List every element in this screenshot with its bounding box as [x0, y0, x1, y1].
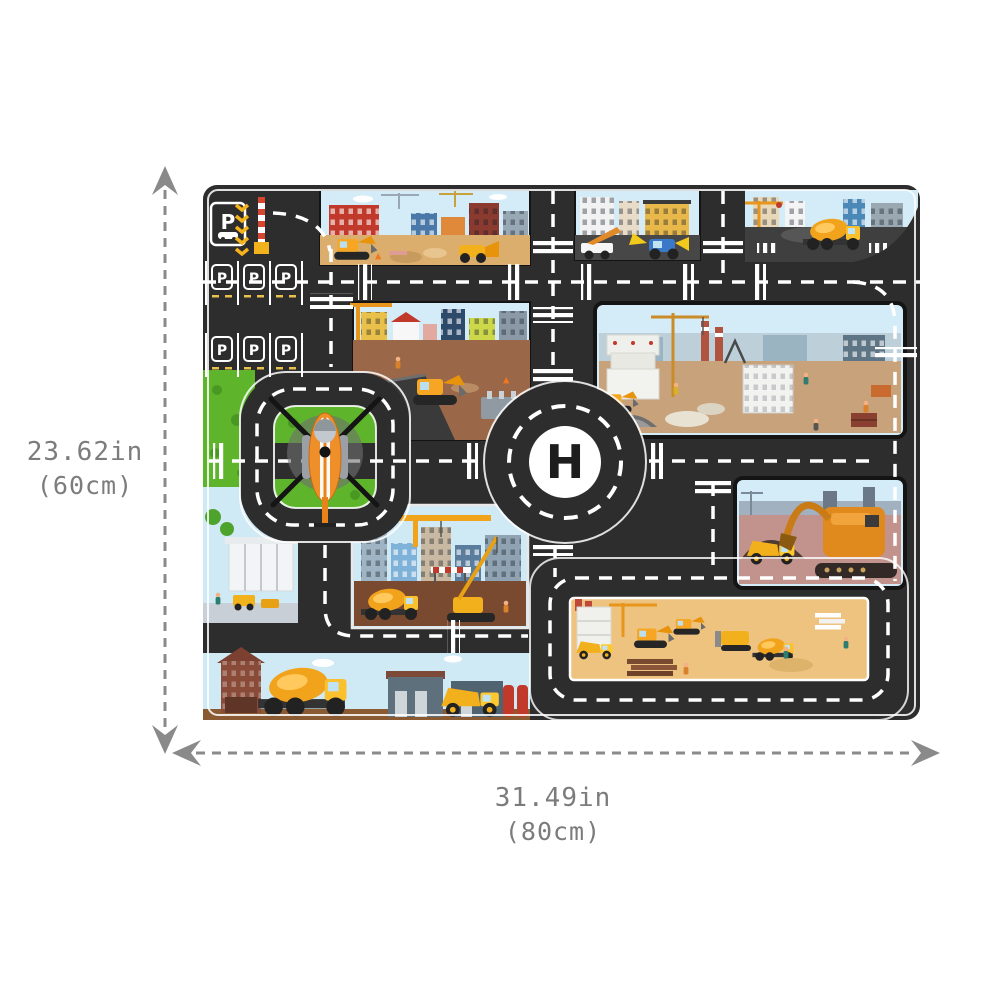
svg-text:P: P	[249, 343, 259, 359]
helipad-letter: H	[546, 435, 585, 489]
scene-top-construction	[320, 190, 530, 265]
scene-top-mixer	[745, 190, 918, 262]
width-inches: 31.49in	[413, 782, 693, 815]
width-cm: (80cm)	[413, 815, 693, 848]
svg-text:P: P	[217, 271, 227, 287]
scene-mining-excavator	[735, 478, 905, 588]
scene-large-site	[595, 303, 905, 437]
product-image: 23.62in (60cm) 31.49in (80cm)	[0, 0, 1000, 1000]
svg-text:P: P	[281, 343, 291, 359]
svg-text:P: P	[217, 343, 227, 359]
scene-top-vehicles	[575, 190, 700, 260]
height-cm: (60cm)	[10, 469, 160, 502]
helipad: H	[484, 381, 646, 543]
parking-sign-letter: P	[221, 210, 236, 234]
scene-industrial-strip	[203, 647, 530, 720]
height-inches: 23.62in	[10, 436, 160, 469]
width-dimension-label: 31.49in (80cm)	[413, 782, 693, 848]
svg-text:P: P	[281, 271, 291, 287]
vertical-dimension-arrow-icon	[148, 164, 182, 756]
height-dimension-label: 23.62in (60cm)	[10, 436, 160, 502]
svg-text:P: P	[249, 271, 259, 287]
play-mat: P	[203, 185, 920, 720]
horizontal-dimension-arrow-icon	[170, 736, 942, 770]
scene-sandy-site	[570, 598, 868, 680]
